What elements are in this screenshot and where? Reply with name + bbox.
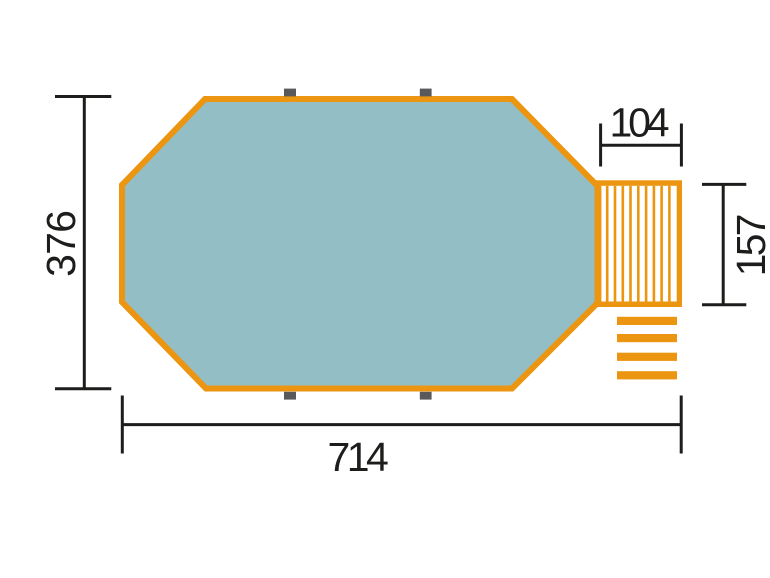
svg-text:157: 157 [728, 215, 770, 276]
svg-text:376: 376 [38, 211, 84, 277]
svg-text:104: 104 [609, 100, 668, 146]
svg-text:714: 714 [327, 434, 388, 480]
